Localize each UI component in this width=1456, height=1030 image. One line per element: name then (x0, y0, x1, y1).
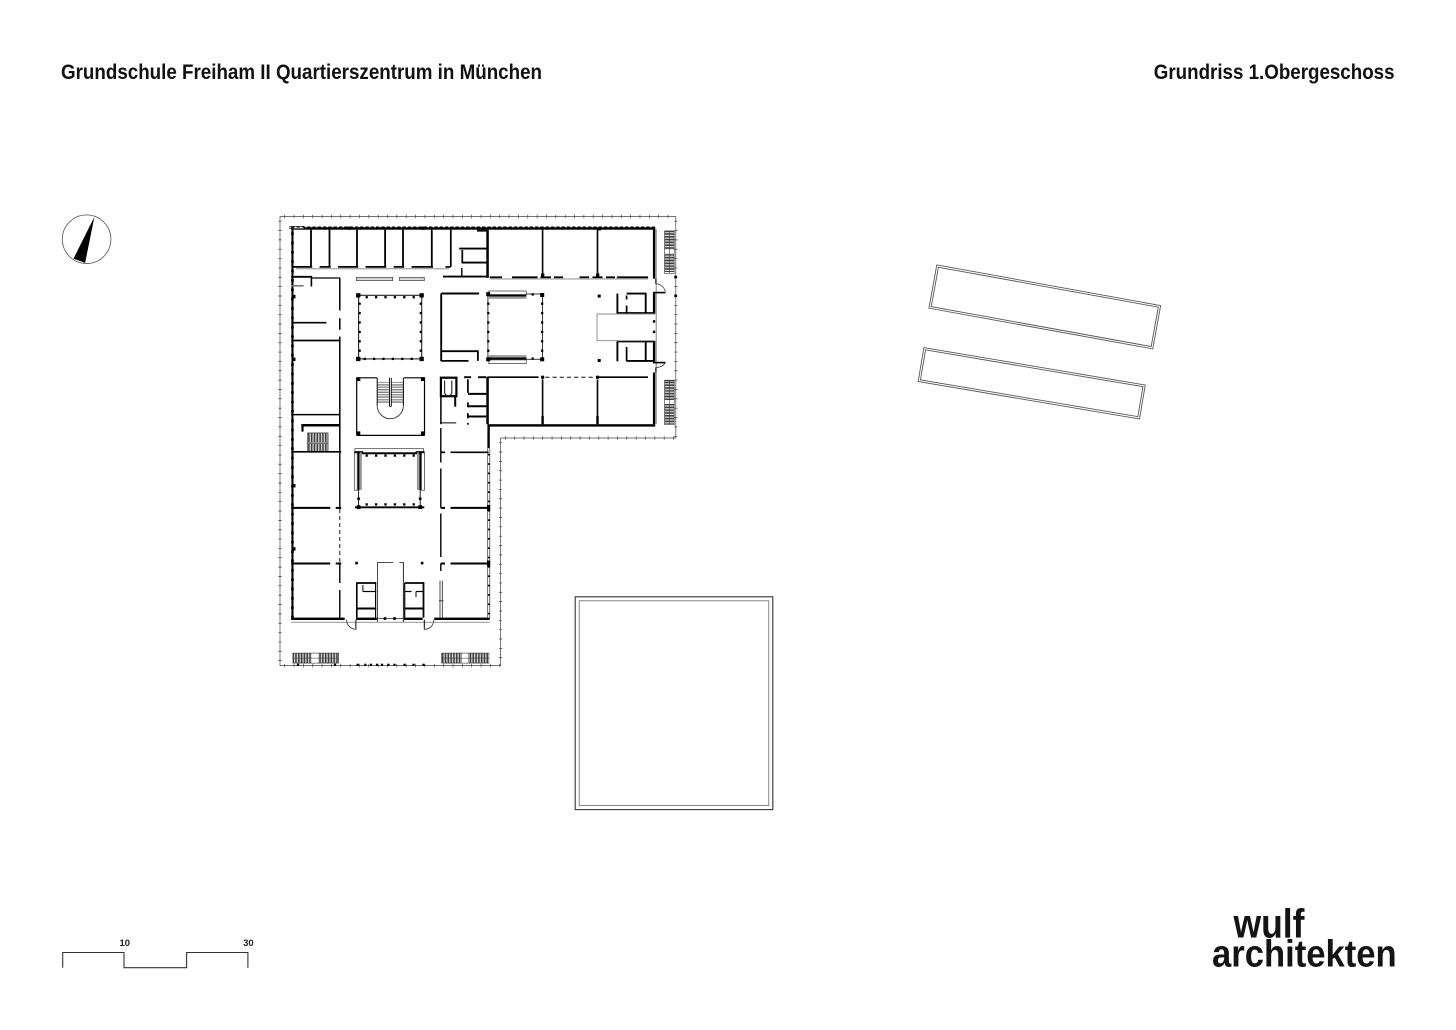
svg-text:architekten: architekten (1212, 934, 1397, 976)
svg-text:10: 10 (120, 938, 131, 949)
svg-text:Grundriss 1.Obergeschoss: Grundriss 1.Obergeschoss (1154, 60, 1395, 84)
svg-text:30: 30 (243, 938, 254, 949)
svg-text:Grundschule Freiham II Quartie: Grundschule Freiham II Quartierszentrum … (61, 60, 542, 84)
